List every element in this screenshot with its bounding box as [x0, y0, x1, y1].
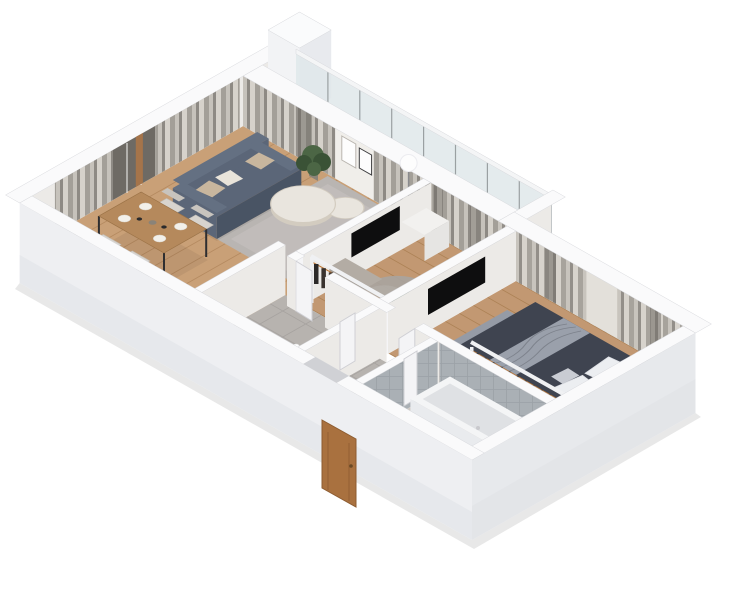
wood-window-post [136, 133, 143, 187]
apartment-isometric-render [0, 0, 750, 609]
entry-door-knob [349, 464, 353, 468]
plant-foliage [307, 162, 321, 176]
bedroom-window-glass [545, 248, 556, 304]
floor-lamp-globe [400, 155, 417, 172]
w2-seg1-face [287, 256, 296, 311]
bathtub-faucet [476, 426, 480, 430]
floorplan-render-canvas [0, 0, 750, 609]
small-room-door-leaf [296, 261, 312, 321]
vestibule-door-leaf [340, 313, 355, 370]
